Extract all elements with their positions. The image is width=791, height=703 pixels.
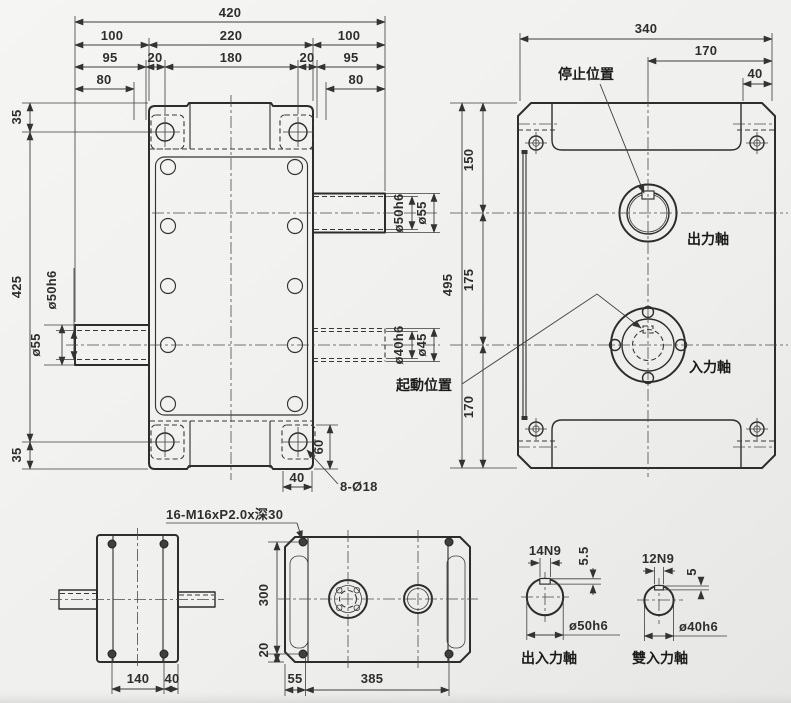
dim-180: 180	[220, 50, 243, 65]
dim-385: 385	[361, 671, 384, 686]
stop-position-label: 停止位置	[558, 66, 614, 82]
dim-170-top: 170	[695, 43, 718, 58]
dim-95-right: 95	[343, 50, 358, 65]
dim-40-pad: 40	[289, 470, 304, 485]
inout-shaft-label: 出入力軸	[521, 650, 577, 666]
dim-495: 495	[440, 274, 455, 297]
dim-140: 140	[127, 671, 150, 686]
inout-keyway	[540, 579, 550, 585]
dim-80-left: 80	[96, 72, 111, 87]
dim-340: 340	[635, 21, 658, 36]
dim-420: 420	[219, 5, 242, 20]
dim-100-right: 100	[338, 28, 361, 43]
dim-150: 150	[461, 149, 476, 172]
dim-100-left: 100	[101, 28, 124, 43]
dim-out-shaft-core: ø50h6	[391, 193, 406, 232]
dim-40-end: 40	[164, 671, 179, 686]
input-shaft-label: 入力軸	[689, 359, 731, 375]
dim-175: 175	[461, 269, 476, 292]
dim-35-top: 35	[9, 109, 24, 124]
inout-key-depth: 5.5	[576, 547, 591, 566]
dim-left-shaft-dia: ø55	[28, 333, 43, 356]
dual-dia: ø40h6	[679, 619, 718, 634]
dim-out-shaft-dia: ø55	[414, 201, 429, 224]
drawing-canvas: 420 100 220 100 95 20 180 20 95 80 80 35…	[0, 0, 791, 703]
dim-35-bottom: 35	[9, 447, 24, 462]
dim-55: 55	[287, 671, 302, 686]
technical-drawing-page: 420 100 220 100 95 20 180 20 95 80 80 35…	[0, 0, 791, 703]
dim-20-right: 20	[299, 50, 314, 65]
start-position-label: 起動位置	[395, 377, 452, 393]
dim-220: 220	[220, 28, 243, 43]
dual-key-depth: 5	[684, 568, 699, 576]
holes-callout: 8-Ø18	[340, 479, 378, 494]
dim-60-pad: 60	[311, 439, 326, 454]
dim-20-left: 20	[147, 50, 162, 65]
dim-in-shaft-dia: ø45	[414, 333, 429, 356]
dim-95-left: 95	[102, 50, 117, 65]
dim-170-left: 170	[461, 396, 476, 419]
dual-keyway	[655, 586, 664, 590]
dim-40-side: 40	[747, 66, 762, 81]
inout-dia: ø50h6	[569, 618, 608, 633]
output-shaft-label: 出力軸	[687, 231, 729, 247]
inout-keyway-label: 14N9	[529, 543, 561, 558]
dim-80-right: 80	[348, 72, 363, 87]
dual-keyway-label: 12N9	[642, 551, 674, 566]
dim-300: 300	[256, 584, 271, 607]
tap-label: 16-M16xP2.0x深30	[166, 507, 283, 522]
dim-in-shaft-core: ø40h6	[391, 325, 406, 364]
dim-425: 425	[9, 276, 24, 299]
dim-left-shaft-core: ø50h6	[44, 270, 59, 309]
dim-20-top: 20	[256, 642, 271, 657]
dual-shaft-label: 雙入力軸	[632, 650, 688, 666]
